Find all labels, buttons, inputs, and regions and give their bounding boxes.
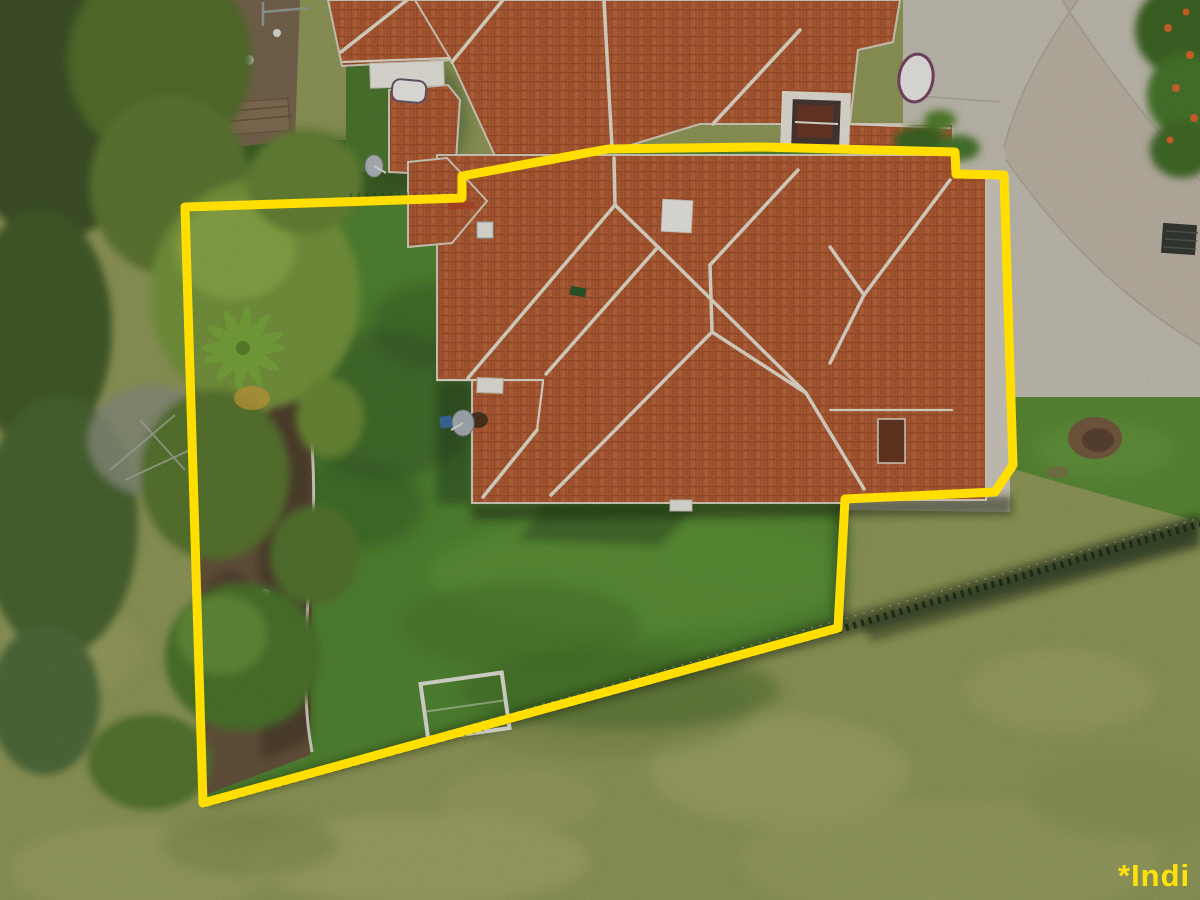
aerial-photo: *Indi — [0, 0, 1200, 900]
watermark-text: *Indi — [1118, 858, 1190, 894]
photo-grain — [0, 0, 1200, 900]
aerial-photo-canvas — [0, 0, 1200, 900]
